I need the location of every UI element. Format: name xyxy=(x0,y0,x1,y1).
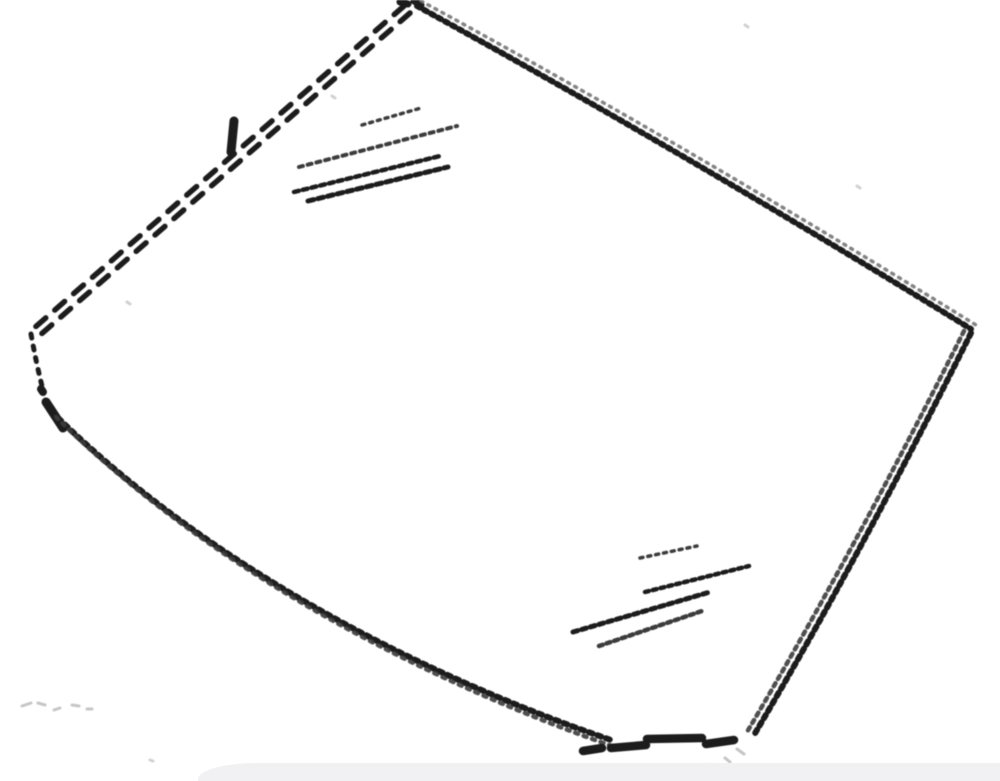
right-edge-beaded xyxy=(754,333,971,735)
upper-glare-stroke-2 xyxy=(299,126,457,167)
page-canvas xyxy=(0,0,1000,781)
bottom-panel-edge xyxy=(198,763,1000,781)
lower-glare-stroke-3 xyxy=(573,592,710,632)
lower-glare-stroke-2 xyxy=(645,566,749,592)
left-corner-curve xyxy=(31,334,42,386)
top-right-edge-beaded xyxy=(417,6,971,329)
top-left-edge-outer-dashed xyxy=(33,6,404,329)
bottom-edge-beaded xyxy=(52,412,614,741)
top-left-edge-inner-dashed xyxy=(39,13,410,336)
windshield-glass-sketch xyxy=(0,0,1000,781)
bottom-left-faint-marks xyxy=(22,703,92,710)
bottom-edge-echo xyxy=(56,417,612,746)
lower-glare-stroke-1 xyxy=(640,546,697,558)
left-corner-dot xyxy=(41,389,43,392)
lower-glare-stroke-4 xyxy=(599,610,705,646)
top-left-tick-mark xyxy=(231,121,234,152)
upper-glare-stroke-1 xyxy=(362,108,421,125)
right-edge-echo xyxy=(747,331,964,732)
